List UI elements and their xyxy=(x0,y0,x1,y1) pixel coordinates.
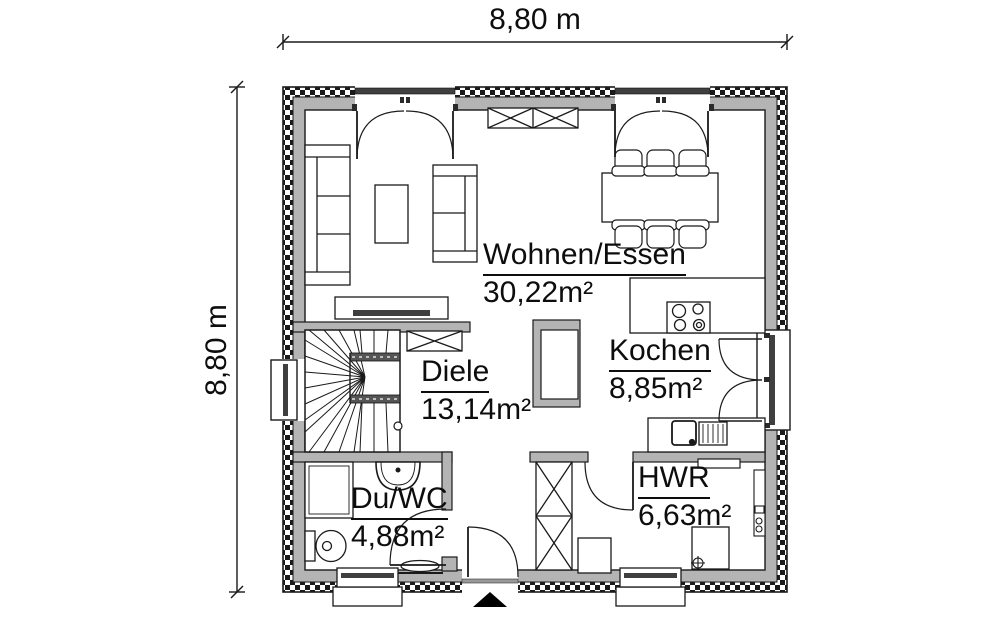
entrance-arrow xyxy=(473,592,507,607)
dimension-label-top: 8,80 m xyxy=(385,3,685,37)
room-area: 6,63m² xyxy=(638,499,731,534)
french-door-dining-opening xyxy=(611,86,714,111)
window-du-wc xyxy=(333,568,402,606)
tv-lowboard xyxy=(335,297,448,319)
stair-newel-post xyxy=(394,422,402,430)
hall-wardrobe xyxy=(407,331,462,351)
entrance-opening xyxy=(462,569,518,593)
dining-chair xyxy=(676,150,709,176)
sofa-small xyxy=(433,165,477,262)
coffee-table xyxy=(375,185,408,243)
winder-staircase xyxy=(305,330,402,452)
room-label-kochen: Kochen 8,85m² xyxy=(609,334,711,407)
room-name: Kochen xyxy=(609,334,711,372)
dimension-label-left: 8,80 m xyxy=(200,280,240,420)
room-name: HWR xyxy=(638,461,710,499)
room-label-wohnen-essen: Wohnen/Essen 30,22m² xyxy=(483,238,686,311)
floorplan-drawing xyxy=(0,0,1000,626)
room-area: 30,22m² xyxy=(483,276,686,311)
shower xyxy=(305,462,353,518)
room-name: Diele xyxy=(421,355,489,393)
dining-chair xyxy=(612,150,645,176)
floorplan-page: 8,80 m 8,80 m Wohnen/Essen 30,22m² Koche… xyxy=(0,0,1000,626)
room-name: Wohnen/Essen xyxy=(483,238,686,276)
kitchen-sink-counter xyxy=(648,418,765,452)
room-area: 8,85m² xyxy=(609,372,711,407)
room-label-diele: Diele 13,14m² xyxy=(421,355,531,428)
window-hwr xyxy=(616,568,685,606)
utility-shelf-right xyxy=(754,470,765,536)
utility-cabinet xyxy=(578,538,611,573)
french-door-living-opening xyxy=(352,86,458,111)
room-label-hwr: HWR 6,63m² xyxy=(638,461,731,534)
dining-table xyxy=(602,173,718,222)
window-left-wall xyxy=(271,359,307,421)
room-area: 4,88m² xyxy=(351,520,448,555)
sofa-large xyxy=(305,145,350,285)
entry-wardrobe xyxy=(536,462,572,570)
dining-chair xyxy=(644,150,677,176)
chimney-shaft xyxy=(533,320,580,407)
room-area: 13,14m² xyxy=(421,393,531,428)
sideboard xyxy=(488,108,578,128)
room-label-du-wc: Du/WC 4,88m² xyxy=(351,482,448,555)
room-name: Du/WC xyxy=(351,482,448,520)
toilet xyxy=(305,531,346,562)
